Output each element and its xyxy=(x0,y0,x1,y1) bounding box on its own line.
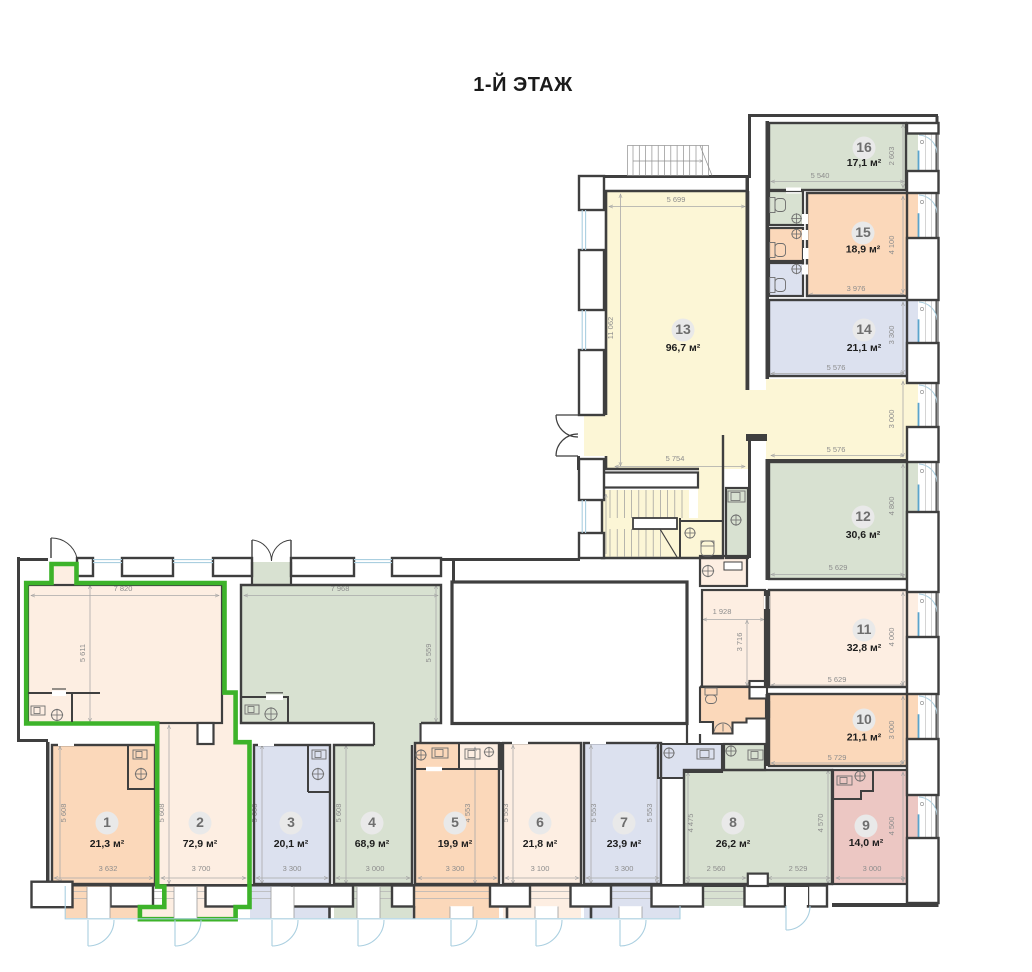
svg-text:14,0 м²: 14,0 м² xyxy=(849,837,884,849)
svg-text:18,9 м²: 18,9 м² xyxy=(846,244,881,256)
svg-text:13: 13 xyxy=(675,321,691,337)
svg-text:17,1 м²: 17,1 м² xyxy=(847,157,882,169)
svg-text:3 100: 3 100 xyxy=(531,864,550,873)
svg-text:3 000: 3 000 xyxy=(887,410,896,429)
svg-text:96,7 м²: 96,7 м² xyxy=(666,342,701,354)
svg-text:4 100: 4 100 xyxy=(887,236,896,255)
svg-text:5 540: 5 540 xyxy=(811,171,830,180)
svg-text:10: 10 xyxy=(856,711,872,727)
svg-text:1 928: 1 928 xyxy=(713,607,732,616)
svg-text:11: 11 xyxy=(857,621,872,637)
svg-text:21,1 м²: 21,1 м² xyxy=(847,342,882,354)
svg-text:1-Й ЭТАЖ: 1-Й ЭТАЖ xyxy=(473,72,573,96)
svg-text:5 699: 5 699 xyxy=(667,195,686,204)
svg-text:30,6 м²: 30,6 м² xyxy=(846,529,881,541)
svg-text:3 716: 3 716 xyxy=(735,633,744,652)
svg-text:5 553: 5 553 xyxy=(645,804,654,823)
svg-text:4: 4 xyxy=(368,814,376,830)
svg-text:26,2 м²: 26,2 м² xyxy=(716,838,751,850)
svg-text:3 632: 3 632 xyxy=(99,864,118,873)
svg-text:12: 12 xyxy=(855,508,871,524)
svg-text:5 559: 5 559 xyxy=(424,644,433,663)
svg-text:5: 5 xyxy=(451,814,459,830)
svg-text:21,1 м²: 21,1 м² xyxy=(847,732,882,744)
svg-text:14: 14 xyxy=(856,321,872,337)
svg-text:3 976: 3 976 xyxy=(847,284,866,293)
svg-text:32,8 м²: 32,8 м² xyxy=(847,642,882,654)
svg-text:5 611: 5 611 xyxy=(78,644,87,662)
svg-text:3 300: 3 300 xyxy=(615,864,634,873)
svg-text:3 000: 3 000 xyxy=(887,721,896,740)
svg-text:15: 15 xyxy=(855,224,871,240)
svg-text:2 603: 2 603 xyxy=(887,147,896,166)
svg-text:3 700: 3 700 xyxy=(192,864,211,873)
svg-text:21,3 м²: 21,3 м² xyxy=(90,838,125,850)
svg-text:3 300: 3 300 xyxy=(446,864,465,873)
svg-text:5 576: 5 576 xyxy=(827,445,846,454)
svg-text:20,1 м²: 20,1 м² xyxy=(274,838,309,850)
svg-text:2: 2 xyxy=(196,814,204,830)
svg-text:3 000: 3 000 xyxy=(863,864,882,873)
svg-text:21,8 м²: 21,8 м² xyxy=(523,838,558,850)
svg-text:5 608: 5 608 xyxy=(334,804,343,823)
svg-text:5 629: 5 629 xyxy=(829,563,848,572)
svg-text:3 000: 3 000 xyxy=(366,864,385,873)
svg-text:5 729: 5 729 xyxy=(828,753,847,762)
svg-text:5 576: 5 576 xyxy=(827,363,846,372)
svg-text:5 608: 5 608 xyxy=(59,804,68,823)
svg-text:8: 8 xyxy=(729,814,737,830)
svg-text:72,9 м²: 72,9 м² xyxy=(183,838,218,850)
svg-text:4 500: 4 500 xyxy=(887,817,896,836)
svg-text:4 800: 4 800 xyxy=(887,497,896,516)
svg-text:2 529: 2 529 xyxy=(789,864,808,873)
svg-text:19,9 м²: 19,9 м² xyxy=(438,838,473,850)
svg-text:3 300: 3 300 xyxy=(283,864,302,873)
svg-text:3 300: 3 300 xyxy=(887,326,896,345)
svg-text:2 560: 2 560 xyxy=(707,864,726,873)
svg-text:5 553: 5 553 xyxy=(589,804,598,823)
svg-text:6: 6 xyxy=(536,814,544,830)
svg-text:7: 7 xyxy=(620,814,628,830)
svg-text:16: 16 xyxy=(856,139,872,155)
svg-text:4 475: 4 475 xyxy=(686,814,695,833)
svg-text:1: 1 xyxy=(103,814,111,830)
svg-text:4 000: 4 000 xyxy=(887,628,896,647)
svg-text:5 754: 5 754 xyxy=(666,454,685,463)
svg-text:4 570: 4 570 xyxy=(816,814,825,833)
svg-text:68,9 м²: 68,9 м² xyxy=(355,838,390,850)
svg-text:5 629: 5 629 xyxy=(828,675,847,684)
svg-text:3: 3 xyxy=(287,814,295,830)
svg-text:23,9 м²: 23,9 м² xyxy=(607,838,642,850)
svg-text:9: 9 xyxy=(862,817,870,833)
svg-text:11 062: 11 062 xyxy=(606,317,615,339)
